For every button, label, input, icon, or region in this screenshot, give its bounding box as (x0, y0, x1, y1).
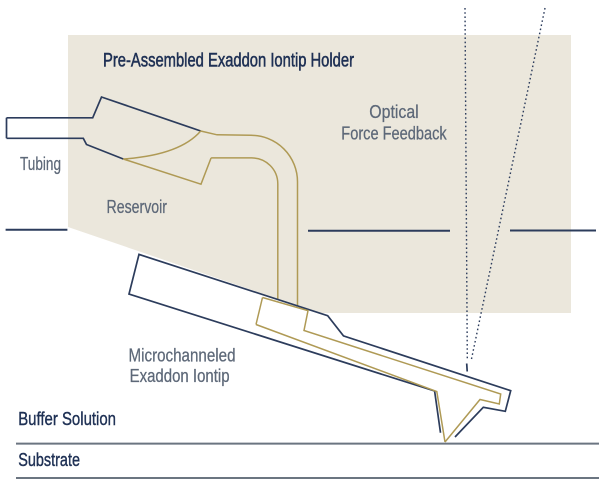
svg-text:Optical: Optical (369, 102, 418, 122)
svg-text:Buffer Solution: Buffer Solution (18, 409, 116, 429)
svg-text:Tubing: Tubing (20, 154, 61, 174)
svg-text:Exaddon Iontip: Exaddon Iontip (130, 366, 230, 386)
svg-text:Reservoir: Reservoir (107, 197, 168, 217)
svg-text:Force Feedback: Force Feedback (341, 123, 447, 143)
svg-text:Pre-Assembled Exaddon Iontip H: Pre-Assembled Exaddon Iontip Holder (103, 51, 355, 72)
svg-text:Substrate: Substrate (18, 450, 80, 470)
svg-text:Microchanneled: Microchanneled (129, 346, 236, 366)
